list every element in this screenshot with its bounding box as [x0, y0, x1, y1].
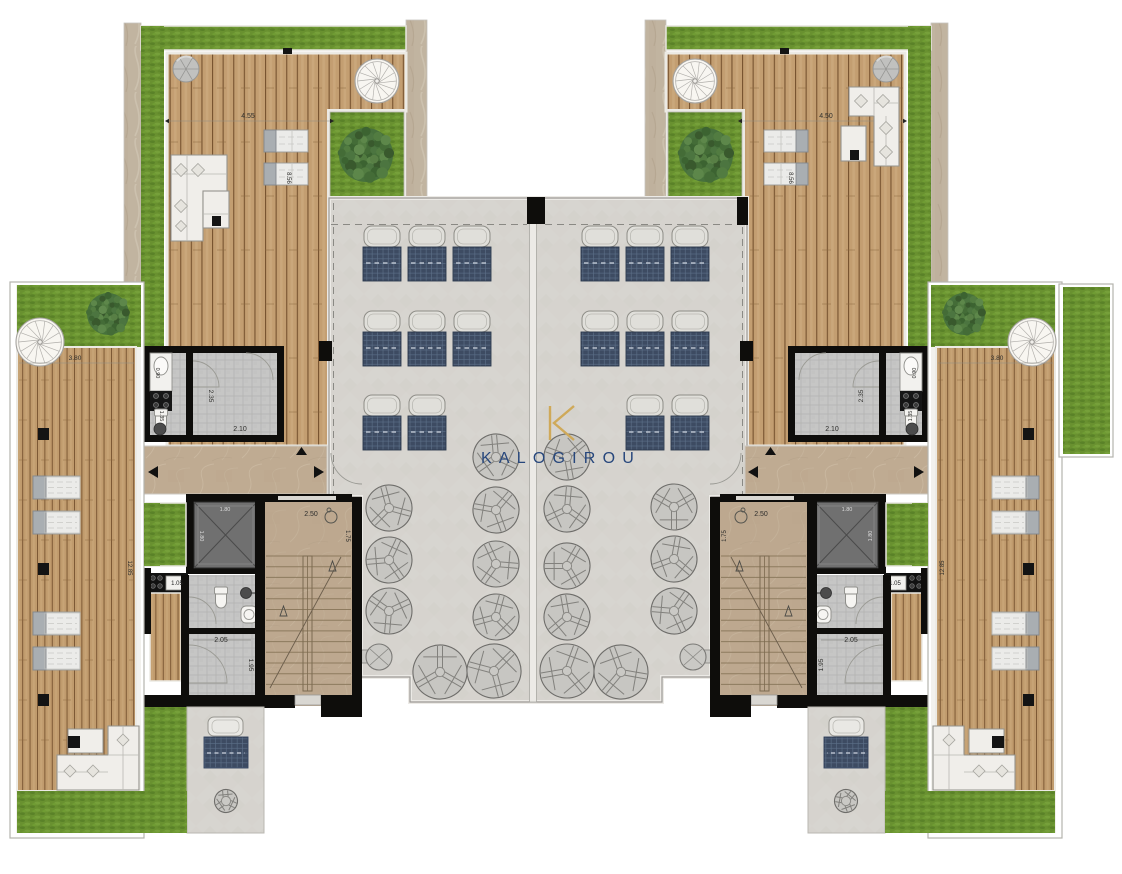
svg-text:1.80: 1.80	[220, 507, 231, 513]
svg-text:1.80: 1.80	[842, 507, 853, 513]
svg-text:1.35: 1.35	[158, 411, 164, 422]
svg-text:4.50: 4.50	[819, 113, 833, 120]
svg-text:KALOGIROU: KALOGIROU	[481, 450, 641, 467]
svg-text:1.05: 1.05	[171, 581, 183, 587]
svg-text:12.85: 12.85	[126, 560, 132, 576]
svg-text:2.10: 2.10	[233, 426, 247, 433]
svg-text:2.50: 2.50	[304, 511, 318, 518]
svg-text:1.35: 1.35	[908, 411, 914, 422]
svg-text:1.80: 1.80	[198, 531, 204, 542]
svg-text:2.10: 2.10	[825, 426, 839, 433]
svg-text:2.05: 2.05	[844, 637, 858, 644]
svg-text:3.80: 3.80	[69, 355, 82, 362]
svg-text:2.05: 2.05	[214, 637, 228, 644]
svg-text:4.55: 4.55	[241, 113, 255, 120]
svg-text:1.75: 1.75	[722, 530, 728, 542]
svg-text:12.85: 12.85	[940, 560, 946, 576]
svg-text:2.35: 2.35	[207, 390, 214, 403]
svg-text:1.80: 1.80	[868, 531, 874, 542]
svg-text:8.56: 8.56	[285, 172, 291, 184]
svg-text:2.35: 2.35	[858, 389, 865, 402]
svg-text:1.75: 1.75	[344, 530, 350, 542]
svg-text:8.56: 8.56	[787, 172, 793, 184]
svg-text:1.05: 1.05	[889, 581, 901, 587]
svg-text:0.90: 0.90	[154, 368, 160, 379]
svg-text:2.50: 2.50	[754, 511, 768, 518]
svg-text:1.95: 1.95	[247, 659, 254, 672]
svg-text:1.95: 1.95	[818, 658, 825, 671]
svg-text:0.90: 0.90	[912, 368, 918, 379]
svg-text:3.80: 3.80	[991, 355, 1004, 362]
